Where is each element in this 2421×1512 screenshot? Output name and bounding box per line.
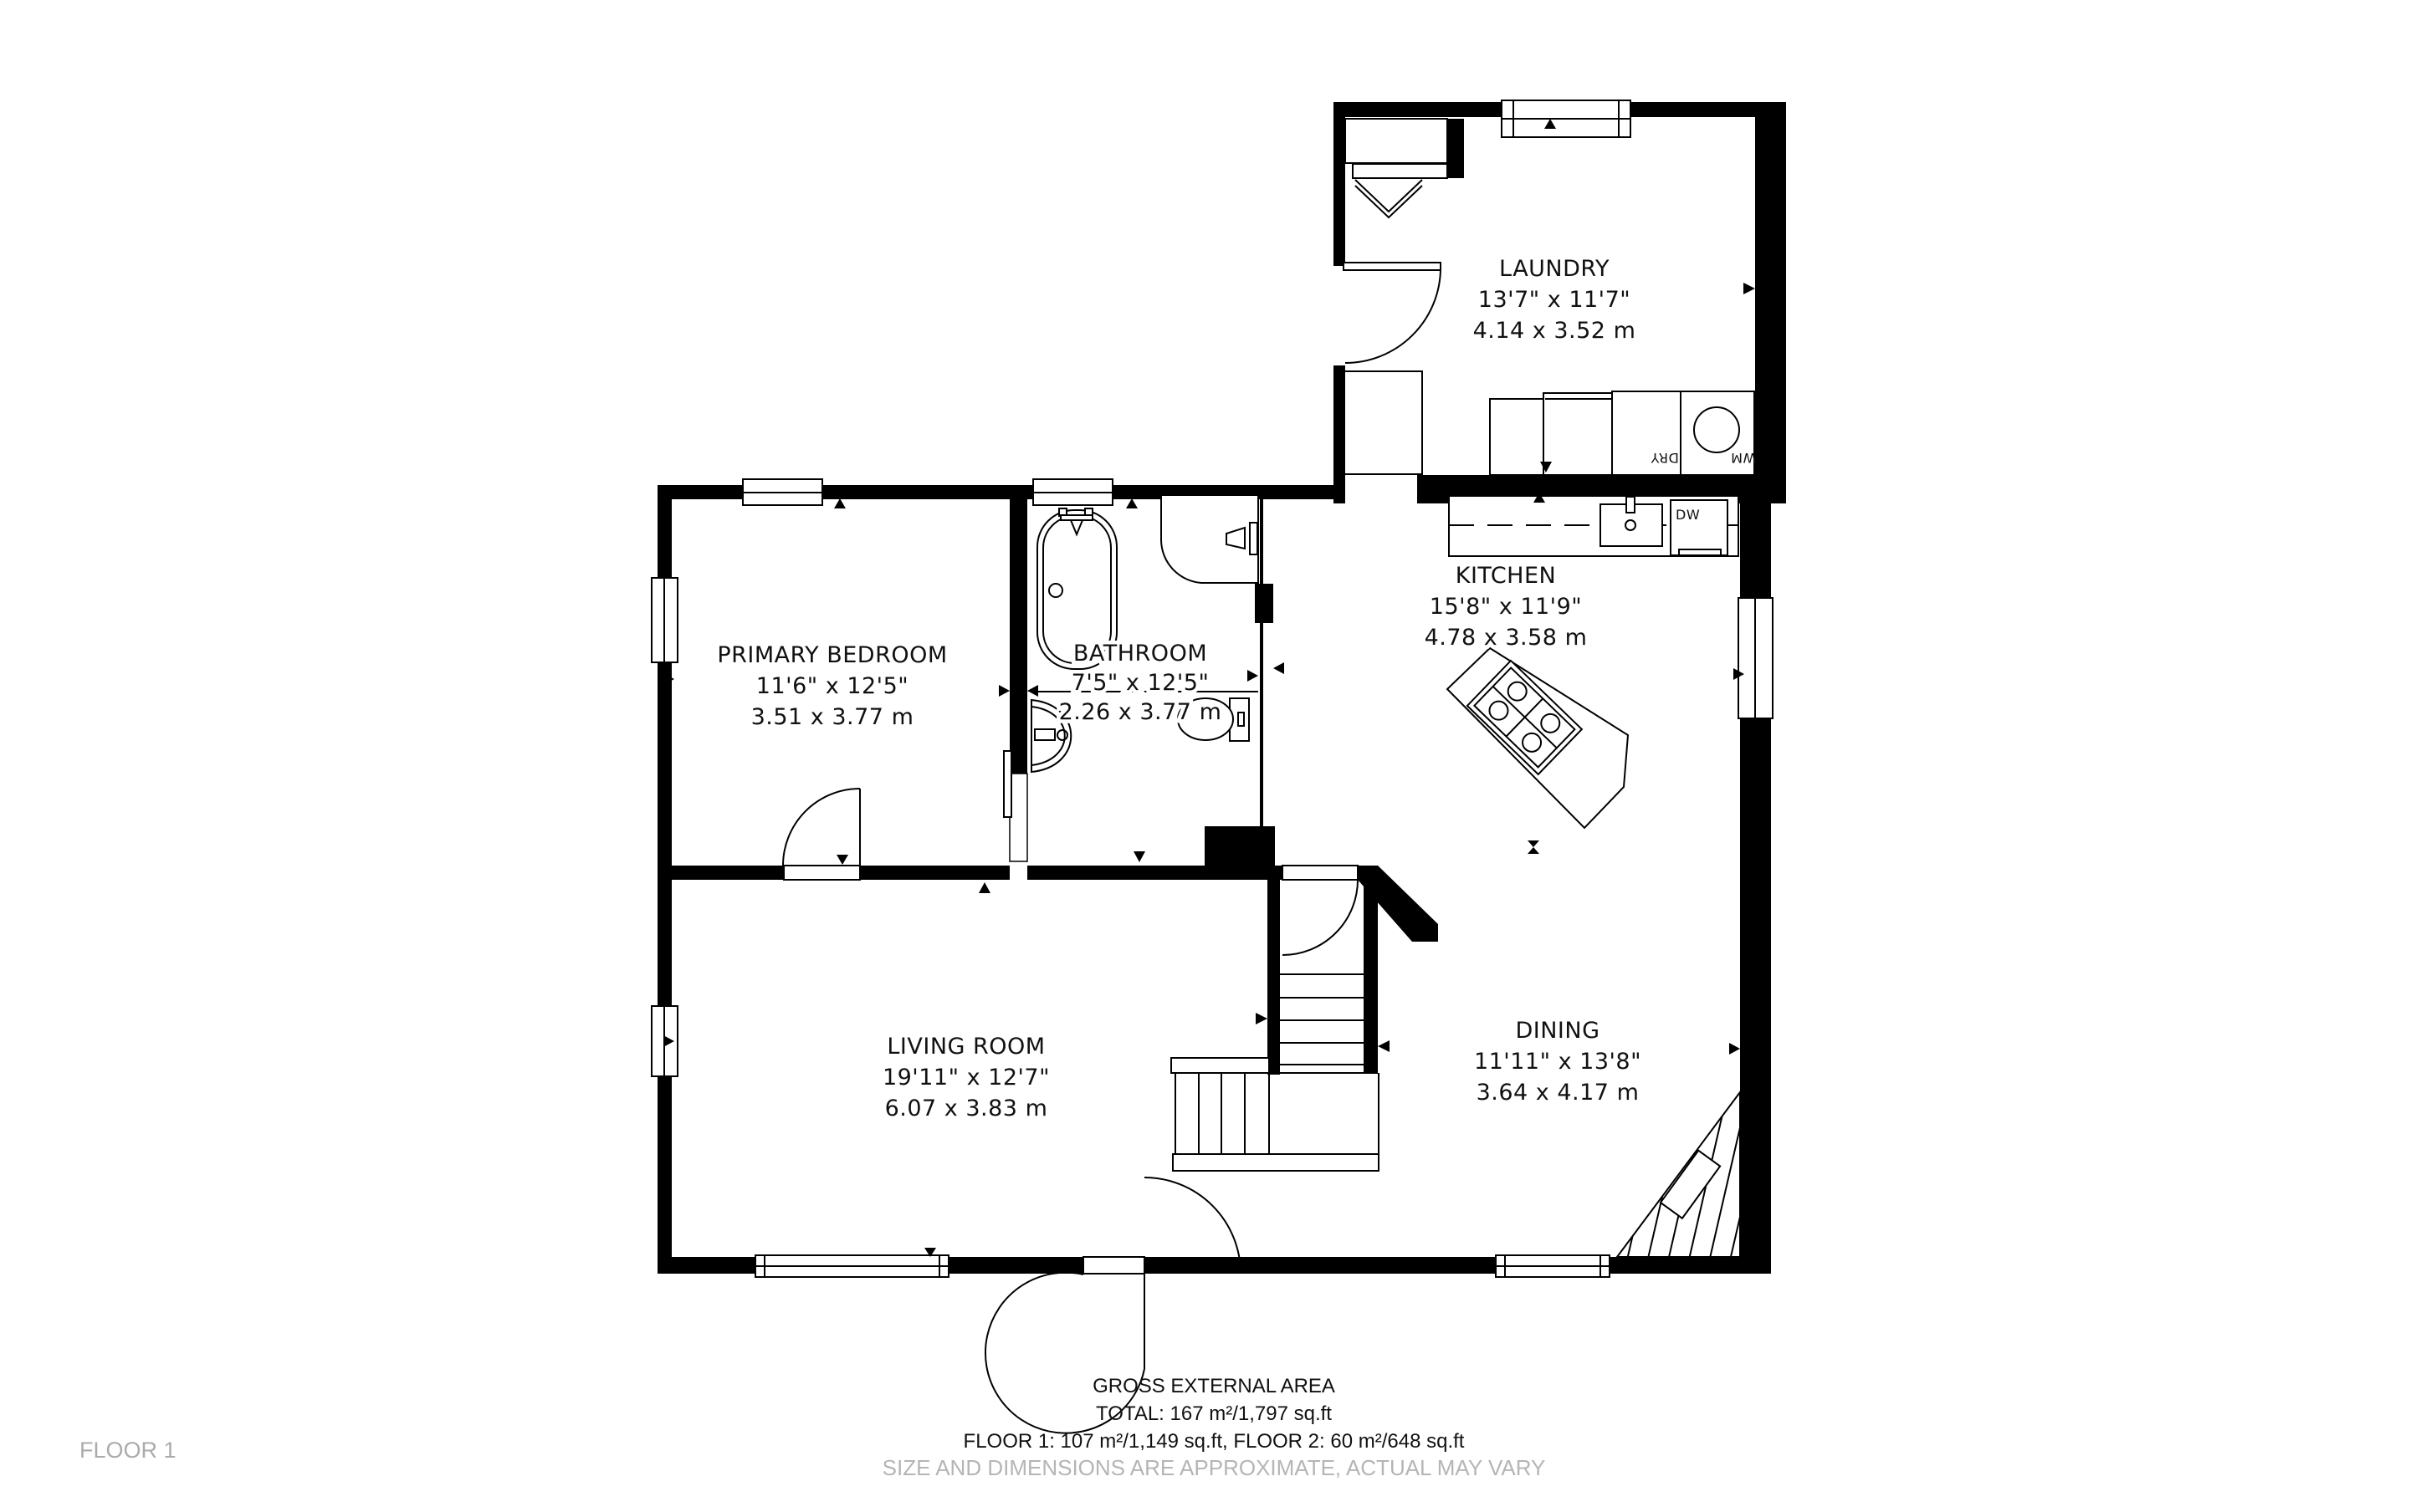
closet (1345, 119, 1464, 217)
bedroom-door (783, 789, 860, 880)
washer-label: WM (1731, 450, 1757, 466)
stair-railing (1173, 1154, 1379, 1171)
kitchen-name: KITCHEN (1456, 563, 1557, 589)
laundry-name: LAUNDRY (1499, 256, 1610, 282)
bedroom-metric: 3.51 x 3.77 m (751, 704, 914, 730)
floorplan-page: DRY WM DW (0, 0, 2421, 1512)
room-label-dining: DINING 11'11" x 13'8" 3.64 x 4.17 m (1474, 1018, 1641, 1106)
room-label-primary-bedroom: PRIMARY BEDROOM 11'6" x 12'5" 3.51 x 3.7… (717, 642, 947, 730)
dining-name: DINING (1515, 1018, 1599, 1044)
laundry-cabinet (1490, 399, 1543, 475)
dining-metric: 3.64 x 4.17 m (1477, 1080, 1640, 1106)
window-bedroom-top (743, 479, 822, 505)
footer: GROSS EXTERNAL AREA TOTAL: 167 m²/1,797 … (883, 1375, 1546, 1480)
room-label-living-room: LIVING ROOM 19'11" x 12'7" 6.07 x 3.83 m (883, 1034, 1050, 1121)
dining-hatched-corner (1617, 1092, 1740, 1257)
dryer: DRY (1612, 391, 1681, 475)
shower-icon (1161, 495, 1258, 583)
footer-total: TOTAL: 167 m²/1,797 sq.ft (1096, 1402, 1332, 1425)
laundry-imperial: 13'7" x 11'7" (1478, 287, 1630, 313)
footer-area-title: GROSS EXTERNAL AREA (1093, 1375, 1335, 1397)
kitchen-imperial: 15'8" x 11'9" (1430, 594, 1582, 620)
laundry-door (1344, 263, 1441, 363)
window-bedroom-left (652, 578, 678, 662)
bathroom-name: BATHROOM (1073, 641, 1207, 667)
dishwasher: DW (1671, 500, 1727, 555)
laundry-counter (1543, 393, 1612, 475)
dryer-label: DRY (1651, 450, 1679, 466)
footer-disclaimer: SIZE AND DIMENSIONS ARE APPROXIMATE, ACT… (883, 1455, 1546, 1480)
footer-floors: FLOOR 1: 107 m²/1,149 sq.ft, FLOOR 2: 60… (964, 1430, 1465, 1453)
living-metric: 6.07 x 3.83 m (885, 1096, 1048, 1121)
room-label-laundry: LAUNDRY 13'7" x 11'7" 4.14 x 3.52 m (1473, 256, 1636, 344)
bedroom-name: PRIMARY BEDROOM (717, 642, 947, 668)
washing-machine: WM (1681, 391, 1756, 475)
bathroom-metric: 2.26 x 3.77 m (1059, 699, 1222, 725)
bathroom-imperial: 7'5" x 12'5" (1072, 670, 1210, 696)
bedroom-imperial: 11'6" x 12'5" (756, 673, 909, 699)
kitchen-fixtures: DW (1447, 496, 1738, 828)
living-name: LIVING ROOM (887, 1034, 1045, 1060)
window-bathroom-top (1033, 479, 1113, 505)
laundry-metric: 4.14 x 3.52 m (1473, 318, 1636, 344)
pantry-cabinet (1344, 371, 1422, 474)
bathroom-fixtures (1031, 495, 1258, 772)
living-imperial: 19'11" x 12'7" (883, 1065, 1050, 1091)
kitchen-sink (1600, 497, 1662, 546)
stair-railing (1171, 1058, 1269, 1073)
dishwasher-label: DW (1676, 507, 1700, 523)
window-dining-bottom (1496, 1255, 1610, 1277)
kitchen-island (1447, 648, 1628, 828)
stairs-door (1282, 866, 1358, 955)
window-laundry-top (1502, 100, 1630, 137)
window-kitchen-right (1738, 598, 1773, 718)
door-arc (783, 789, 860, 866)
door-arc (1345, 269, 1441, 363)
room-label-kitchen: KITCHEN 15'8" x 11'9" 4.78 x 3.58 m (1425, 563, 1588, 651)
window-living-bottom (755, 1255, 949, 1277)
room-label-bathroom: BATHROOM 7'5" x 12'5" 2.26 x 3.77 m (1059, 641, 1222, 725)
floorplan-canvas: DRY WM DW (0, 0, 2421, 1512)
floor-number-label: FLOOR 1 (79, 1438, 177, 1463)
door-arc (1282, 880, 1358, 955)
dining-imperial: 11'11" x 13'8" (1474, 1049, 1641, 1075)
kitchen-metric: 4.78 x 3.58 m (1425, 625, 1588, 651)
